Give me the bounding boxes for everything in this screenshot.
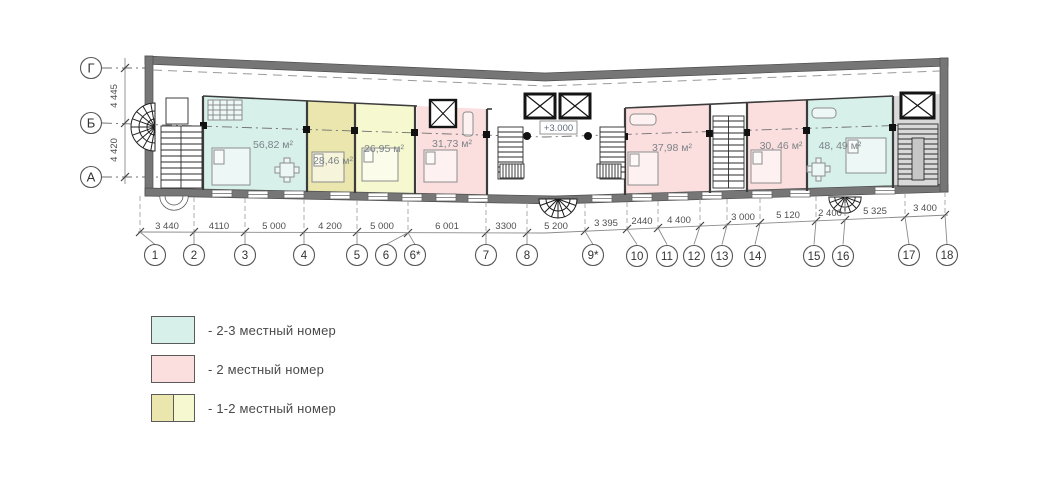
elevator-icon: [560, 94, 590, 118]
room-area-label: 28,46 м²: [313, 155, 353, 167]
axis-label: Г: [87, 61, 94, 76]
axis-label: А: [87, 170, 96, 185]
axis-bubble: 6: [376, 245, 397, 266]
dim-value: 4110: [209, 221, 229, 232]
entrance-fan-center: [539, 199, 577, 218]
dim-value: 3 000: [731, 212, 755, 223]
axis-label: 2: [191, 250, 197, 262]
axis-label: 8: [524, 250, 530, 262]
axis-bubble: 5: [347, 245, 368, 266]
axis-label: 16: [837, 251, 850, 263]
legend: - 2-3 местный номер - 2 местный номер - …: [151, 316, 336, 422]
wall-top: [145, 56, 948, 81]
axis-bubble: А: [81, 167, 102, 188]
legend-label: - 2-3 местный номер: [208, 323, 336, 338]
dim-value: 6 001: [435, 221, 459, 232]
legend-item-2-places: - 2 местный номер: [151, 355, 336, 383]
axis-label: 3: [242, 250, 248, 262]
legend-swatch-pink: [151, 355, 195, 383]
axis-bubble: 16: [833, 246, 854, 267]
level-marker-value: +3.000: [544, 123, 573, 134]
dim-value: 5 000: [262, 221, 286, 232]
dim-value: 5 000: [370, 221, 394, 232]
bathtub-icon: [812, 108, 836, 118]
bed-icon: [628, 152, 658, 185]
axis-label: 17: [903, 250, 916, 262]
axis-bubble: 6*: [405, 245, 426, 266]
room-area-label: 30, 46 м²: [760, 140, 803, 152]
dim-value: 4 200: [318, 221, 342, 232]
axis-label: 15: [808, 251, 821, 263]
mid-stairwell: [713, 116, 744, 188]
axis-label: 10: [631, 251, 644, 263]
hall-right-stair: [597, 127, 625, 179]
axis-label: 14: [749, 251, 762, 263]
wall-right: [940, 58, 948, 192]
legend-swatch-yellow-dark: [152, 395, 174, 421]
axis-label: 5: [354, 250, 360, 262]
entrance-fan-left: [160, 196, 189, 210]
room-area-label: 48, 49 м²: [819, 140, 862, 152]
axis-label: 1: [152, 250, 158, 262]
right-stairwell: [898, 124, 938, 186]
legend-label: - 2 местный номер: [208, 362, 324, 377]
axis-label: 18: [941, 250, 954, 262]
axis-bubble: Б: [81, 113, 102, 134]
axis-label: 11: [661, 251, 673, 263]
dim-value: 5 325: [863, 206, 887, 217]
room-area-label: 56,82 м²: [253, 139, 293, 151]
dim-value: 2440: [631, 216, 652, 227]
dim-value: 5 120: [776, 210, 800, 221]
dim-value: 2 400: [818, 208, 842, 219]
axis-label: 6*: [410, 250, 421, 262]
elevator-icon: [430, 100, 456, 127]
axis-bubble: 12: [684, 246, 705, 267]
room-area-label: 26,95 м²: [364, 143, 404, 155]
axis-bubble: 2: [184, 245, 205, 266]
axis-label: 13: [716, 251, 729, 263]
dim-value: 3 440: [155, 221, 179, 232]
axis-label: 12: [688, 251, 701, 263]
elevator-icon: [525, 94, 555, 118]
elevator-icon: [901, 93, 934, 118]
dim-value: 3300: [495, 221, 516, 232]
axis-bubble: 1: [145, 245, 166, 266]
legend-swatch-yellow-light: [174, 395, 195, 421]
axis-bubble: 15: [804, 246, 825, 267]
axis-label: 6: [383, 250, 389, 262]
legend-item-2-3-places: - 2-3 местный номер: [151, 316, 336, 344]
axis-label: Б: [87, 116, 96, 131]
axis-bubble: 11: [657, 246, 678, 267]
dim-value: 5 200: [544, 221, 568, 232]
axis-bubble: 14: [745, 246, 766, 267]
bathtub-icon: [463, 112, 473, 136]
bed-icon: [424, 150, 457, 182]
bottom-axis-bubbles: 1 2 3 4 5 6 6* 7 8 9* 10 11 12 13 14 15 …: [145, 245, 958, 267]
floor-plan-page: 56,82 м² 28,46 м² 26,95 м² 31,73 м² 37,9…: [0, 0, 1049, 483]
axis-bubble: 10: [627, 246, 648, 267]
axis-label: 7: [483, 250, 489, 262]
axis-bubble: 8: [517, 245, 538, 266]
axis-bubble: 7: [476, 245, 497, 266]
legend-swatch-yellow: [151, 394, 195, 422]
bathtub-icon: [630, 114, 656, 125]
legend-label: - 1-2 местный номер: [208, 401, 336, 416]
axis-bubble: 17: [899, 245, 920, 266]
dim-left-2: 4 420: [109, 138, 120, 162]
dim-value: 4 400: [667, 215, 691, 226]
dim-left-1: 4 445: [109, 84, 120, 108]
legend-swatch-teal: [151, 316, 195, 344]
bed-icon: [212, 148, 250, 185]
axis-bubble: 13: [712, 246, 733, 267]
dim-value: 3 395: [594, 218, 618, 229]
left-axes: Г Б А 4 445 4 420: [81, 58, 130, 188]
axis-bubble: 4: [294, 245, 315, 266]
axis-bubble: 3: [235, 245, 256, 266]
left-stairwell: [161, 98, 202, 188]
room-area-label: 31,73 м²: [432, 138, 472, 150]
hall-left-stair: [498, 127, 524, 179]
winder-stair: [131, 103, 155, 151]
room-area-label: 37,98 м²: [652, 142, 692, 154]
legend-item-1-2-places: - 1-2 местный номер: [151, 394, 336, 422]
axis-label: 9*: [588, 250, 599, 262]
axis-bubble: 18: [937, 245, 958, 266]
bed-icon: [751, 150, 781, 183]
axis-bubble: 9*: [583, 245, 604, 266]
dim-value: 3 400: [913, 203, 937, 214]
axis-bubble: Г: [81, 58, 102, 79]
axis-label: 4: [301, 250, 308, 262]
level-marker: +3.000: [540, 121, 577, 134]
